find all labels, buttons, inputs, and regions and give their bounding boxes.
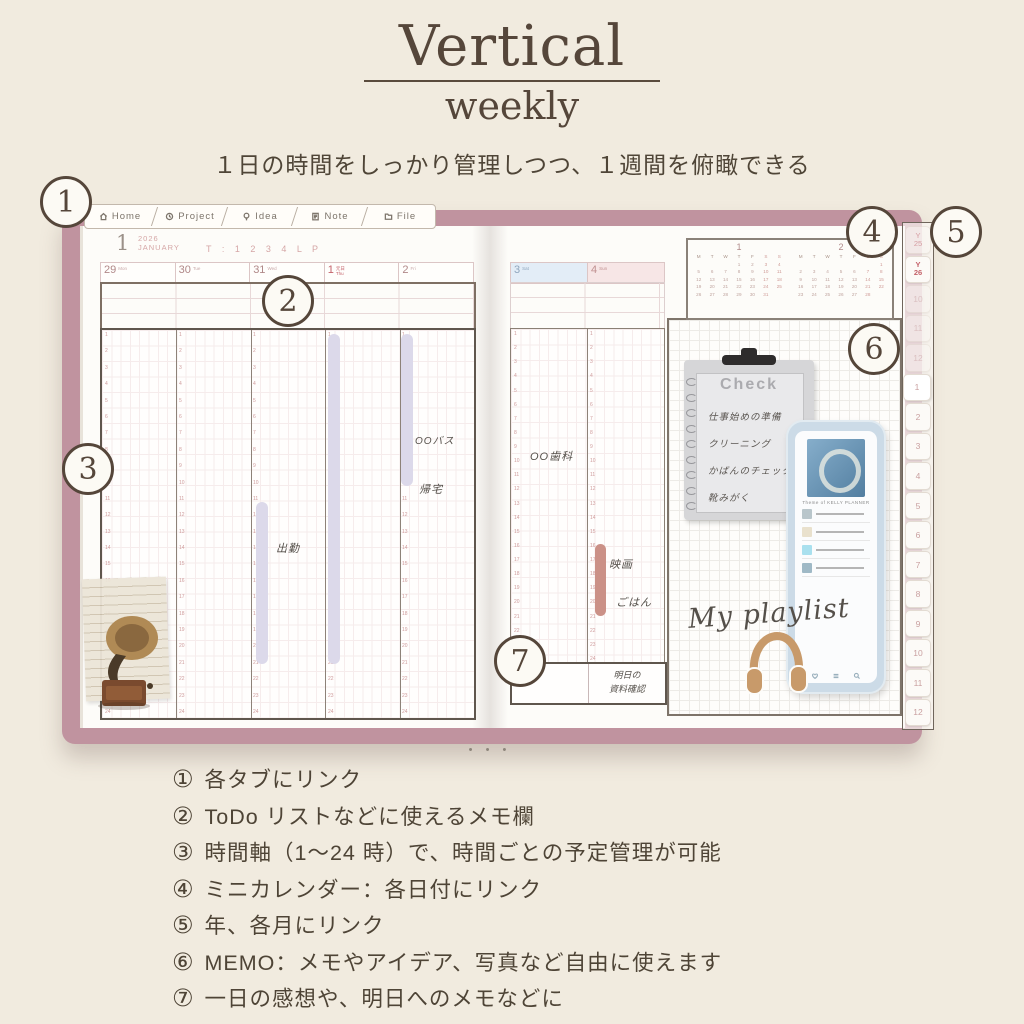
weekday-header: W <box>821 253 834 261</box>
day-cell-3[interactable]: 3 Sat <box>511 263 588 283</box>
hour-label: 17 <box>514 558 524 563</box>
mini-calendar-date[interactable]: 11 <box>821 276 834 284</box>
mini-calendar-date[interactable]: 18 <box>821 283 834 291</box>
track-title-line <box>816 549 864 551</box>
side-tab-8[interactable]: 8 <box>905 580 931 608</box>
mini-calendar-date[interactable]: 7 <box>719 268 732 276</box>
mini-calendar-date[interactable]: 4 <box>773 261 786 269</box>
note-icon <box>311 212 320 221</box>
hour-label: 5 <box>179 399 189 404</box>
mini-calendar-date[interactable]: 21 <box>861 283 874 291</box>
feature-item-2: ②ToDo リストなどに使えるメモ欄 <box>172 800 912 837</box>
mini-calendar-date[interactable]: 13 <box>848 276 861 284</box>
hour-label: 15 <box>179 562 189 567</box>
tab-idea-label: Idea <box>255 211 278 222</box>
mini-calendar-date[interactable]: 24 <box>807 291 820 299</box>
mini-calendar-date[interactable]: 19 <box>692 283 705 291</box>
hour-label: 14 <box>179 546 189 551</box>
hour-label: 5 <box>105 399 115 404</box>
clock-icon <box>165 212 174 221</box>
track-title-line <box>816 531 864 533</box>
headphones-icon <box>740 622 812 698</box>
hour-label: 9 <box>253 464 263 469</box>
hour-label: 24 <box>179 710 189 715</box>
day-cell-1[interactable]: 1 元日 Thu <box>325 263 400 283</box>
day-cell-29[interactable]: 29 Mon <box>101 263 176 283</box>
tab-note[interactable]: Note <box>295 205 365 228</box>
hour-label: 13 <box>105 530 115 535</box>
hour-label: 19 <box>514 586 524 591</box>
event-bar-bus <box>401 334 413 486</box>
page-subtitle: weekly <box>0 84 1024 128</box>
side-tab-10[interactable]: 10 <box>905 285 931 313</box>
mini-calendar-date[interactable]: 5 <box>834 268 847 276</box>
callout-1: 1 <box>40 176 92 228</box>
mini-calendar-date[interactable]: 3 <box>759 261 772 269</box>
side-tab-5[interactable]: 5 <box>905 492 931 520</box>
mini-calendar-date[interactable]: 28 <box>861 291 874 299</box>
mini-calendar-month-label[interactable]: 1 <box>692 242 786 252</box>
hour-label: 5 <box>590 389 600 394</box>
day-cell-2[interactable]: 2 Fri <box>399 263 473 283</box>
clipboard-clip <box>722 355 776 365</box>
mini-calendar-date[interactable]: 25 <box>773 283 786 291</box>
mini-calendar-date[interactable]: 26 <box>834 291 847 299</box>
hour-label: 2 <box>105 349 115 354</box>
entry-home: 帰宅 <box>419 481 443 497</box>
side-tab-2[interactable]: 2 <box>905 403 931 431</box>
hour-label: 9 <box>514 445 524 450</box>
feature-item-1: ①各タブにリンク <box>172 763 912 800</box>
right-timeline-grid: 123456789101112131415161718192021222324 … <box>510 328 665 666</box>
hour-label: 16 <box>402 579 412 584</box>
day-number: 31 <box>253 264 265 276</box>
mini-calendar-date[interactable]: 9 <box>794 276 807 284</box>
mini-calendar-date[interactable]: 30 <box>746 291 759 299</box>
hour-label: 2 <box>514 346 524 351</box>
mini-calendar-empty <box>821 261 834 269</box>
hour-label: 7 <box>105 431 115 436</box>
column-divider <box>176 330 177 718</box>
mini-calendar-date[interactable]: 6 <box>848 268 861 276</box>
mini-calendar-empty <box>848 261 861 269</box>
hour-label: 13 <box>179 530 189 535</box>
hour-label: 3 <box>105 366 115 371</box>
hour-label: 13 <box>402 530 412 535</box>
week-links[interactable]: T : 1 2 3 4 L P <box>206 244 322 254</box>
side-tab-11[interactable]: 11 <box>905 315 931 343</box>
hour-label: 4 <box>105 382 115 387</box>
tab-note-label: Note <box>324 211 348 222</box>
hour-label: 21 <box>402 661 412 666</box>
hour-label: 5 <box>253 399 263 404</box>
hour-label: 22 <box>590 629 600 634</box>
hour-label: 3 <box>514 360 524 365</box>
hour-label: 23 <box>253 694 263 699</box>
mini-calendar-date[interactable]: 15 <box>875 276 888 284</box>
hour-label: 10 <box>514 459 524 464</box>
side-tab-y25[interactable]: Y25 <box>905 226 931 254</box>
hour-label: 22 <box>328 677 338 682</box>
track-row <box>802 527 870 541</box>
gramophone-icon <box>88 602 168 717</box>
hour-label: 19 <box>402 628 412 633</box>
hour-label: 16 <box>179 579 189 584</box>
event-bar-commute <box>256 502 268 664</box>
right-memo-row[interactable] <box>510 282 665 330</box>
hour-label: 1 <box>253 333 263 338</box>
feature-item-7: ⑦一日の感想や、明日へのメモなどに <box>172 982 912 1019</box>
entry-dinner: ごはん <box>616 594 652 610</box>
mini-calendar-date[interactable]: 7 <box>861 268 874 276</box>
hour-label: 22 <box>253 677 263 682</box>
day-number: 3 <box>514 264 520 276</box>
hour-label: 13 <box>514 502 524 507</box>
mini-calendar-date[interactable]: 1 <box>875 261 888 269</box>
mini-calendar-date[interactable]: 17 <box>759 276 772 284</box>
callout-5: 5 <box>930 206 982 258</box>
track-thumbnail <box>802 527 812 537</box>
mini-calendar-date[interactable]: 29 <box>732 291 745 299</box>
hour-label: 23 <box>328 694 338 699</box>
page: Vertical weekly １日の時間をしっかり管理しつつ、１週間を俯瞰でき… <box>0 0 1024 1024</box>
check-item: 靴みがく <box>708 485 792 512</box>
mini-calendar-date[interactable]: 23 <box>794 291 807 299</box>
mini-calendar-empty <box>794 261 807 269</box>
hour-label: 9 <box>590 445 600 450</box>
hour-label: 18 <box>179 612 189 617</box>
hour-label: 6 <box>590 403 600 408</box>
weekday-label: Fri <box>411 264 416 271</box>
hour-label: 14 <box>590 516 600 521</box>
hour-label: 20 <box>179 644 189 649</box>
tab-file-label: File <box>397 211 416 222</box>
mini-calendar-date[interactable]: 20 <box>705 283 718 291</box>
track-title-line <box>816 513 864 515</box>
mini-calendar-date[interactable]: 28 <box>719 291 732 299</box>
check-items: 仕事始めの準備 クリーニング かばんのチェック 靴みがく <box>708 404 792 512</box>
weekday-header: T <box>705 253 718 261</box>
nav-tab-bar: Home Project Idea Note File <box>84 204 436 229</box>
check-item: クリーニング <box>708 431 792 458</box>
hour-label: 16 <box>514 544 524 549</box>
mini-calendar-date[interactable]: 10 <box>759 268 772 276</box>
hour-label: 3 <box>590 360 600 365</box>
search-icon <box>853 672 861 680</box>
hour-label: 8 <box>590 431 600 436</box>
tab-home-label: Home <box>112 211 141 222</box>
mini-calendar-date[interactable]: 15 <box>732 276 745 284</box>
hour-label: 7 <box>179 431 189 436</box>
mini-calendar-date[interactable]: 27 <box>848 291 861 299</box>
hour-label: 4 <box>590 374 600 379</box>
side-tab-11[interactable]: 11 <box>905 669 931 697</box>
check-item: かばんのチェック <box>708 458 792 485</box>
mini-calendar-date[interactable]: 10 <box>807 276 820 284</box>
tab-project-label: Project <box>178 211 215 222</box>
time-axis: 123456789101112131415161718192021222324 <box>514 332 524 662</box>
track-row <box>802 545 870 559</box>
hour-label: 11 <box>402 497 412 502</box>
mini-calendar-date[interactable]: 3 <box>807 268 820 276</box>
entry-bus: OOバス <box>415 432 455 447</box>
day-number: 29 <box>104 264 116 276</box>
weekday-header: T <box>834 253 847 261</box>
note-box-divider <box>588 664 589 703</box>
hour-label: 4 <box>514 374 524 379</box>
hour-label: 10 <box>590 459 600 464</box>
weekday-label: Mon <box>118 264 127 271</box>
mini-calendar-date[interactable]: 2 <box>746 261 759 269</box>
holiday-weekday-label: 元日 Thu <box>336 264 345 276</box>
hour-label: 13 <box>590 502 600 507</box>
lightbulb-icon <box>242 212 251 221</box>
mini-calendar-date[interactable]: 21 <box>719 283 732 291</box>
mini-calendar-empty <box>861 261 874 269</box>
mini-calendar-date[interactable]: 18 <box>773 276 786 284</box>
hour-label: 17 <box>179 595 189 600</box>
weekday-header: M <box>692 253 705 261</box>
mini-calendar-date[interactable]: 13 <box>705 276 718 284</box>
hour-label: 17 <box>402 595 412 600</box>
mini-calendar-date[interactable]: 17 <box>807 283 820 291</box>
hour-label: 5 <box>514 389 524 394</box>
year-month-label: 2026 JANUARY <box>138 235 180 252</box>
mini-calendar-empty <box>875 291 888 299</box>
hour-label: 9 <box>179 464 189 469</box>
mini-calendar-date[interactable]: 14 <box>861 276 874 284</box>
hour-label: 4 <box>179 382 189 387</box>
column-divider <box>587 329 588 665</box>
event-bar-movie <box>595 544 606 616</box>
hour-label: 14 <box>402 546 412 551</box>
mini-calendar-empty <box>773 291 786 299</box>
hour-label: 23 <box>590 643 600 648</box>
hour-label: 2 <box>179 349 189 354</box>
hour-label: 8 <box>253 448 263 453</box>
side-tab-y26[interactable]: Y26 <box>905 256 931 284</box>
hour-label: 19 <box>179 628 189 633</box>
hour-label: 3 <box>253 366 263 371</box>
hour-label: 12 <box>402 513 412 518</box>
check-item: 仕事始めの準備 <box>708 404 792 431</box>
hour-label: 23 <box>402 694 412 699</box>
mini-calendar-date[interactable]: 19 <box>834 283 847 291</box>
tab-project[interactable]: Project <box>155 205 225 228</box>
mini-calendar-month: 1MTWTFSS12345678910111213141516171819202… <box>688 240 790 318</box>
hour-label: 1 <box>105 333 115 338</box>
hour-label: 15 <box>105 562 115 567</box>
side-tab-10[interactable]: 10 <box>905 639 931 667</box>
weekday-label: Sun <box>599 264 607 271</box>
spiral-binding <box>686 378 697 510</box>
mini-calendar-date[interactable]: 4 <box>821 268 834 276</box>
mini-calendar-date[interactable]: 8 <box>875 268 888 276</box>
mini-calendar-empty <box>807 261 820 269</box>
column-divider <box>251 330 252 718</box>
track-list <box>795 509 877 577</box>
hour-label: 7 <box>590 417 600 422</box>
feature-item-6: ⑥MEMO：メモやアイデア、写真など自由に使えます <box>172 946 912 983</box>
mini-calendar-date[interactable]: 31 <box>759 291 772 299</box>
tomorrow-note: 明日の 資料確認 <box>590 668 664 696</box>
mini-calendar-empty <box>719 261 732 269</box>
hour-label: 6 <box>179 415 189 420</box>
month-number[interactable]: 1 <box>116 231 129 255</box>
weekday-label: Thu <box>336 271 344 276</box>
hour-label: 8 <box>179 448 189 453</box>
hour-label: 1 <box>514 332 524 337</box>
hour-label: 11 <box>590 473 600 478</box>
hour-label: 24 <box>253 710 263 715</box>
right-date-row: 3 Sat 4 Sun <box>510 262 665 284</box>
callout-2: 2 <box>262 275 314 327</box>
side-tab-7[interactable]: 7 <box>905 551 931 579</box>
callout-4: 4 <box>846 206 898 258</box>
day-number: 1 <box>328 264 334 276</box>
weekday-header: M <box>794 253 807 261</box>
check-title: Check <box>684 376 814 394</box>
mini-calendar-date[interactable]: 22 <box>875 283 888 291</box>
mini-calendar-date[interactable]: 22 <box>732 283 745 291</box>
side-tab-4[interactable]: 4 <box>905 462 931 490</box>
tab-home[interactable]: Home <box>85 205 155 228</box>
track-title-line <box>816 567 864 569</box>
heart-icon <box>811 672 819 680</box>
side-tab-12[interactable]: 12 <box>905 699 931 727</box>
hour-label: 6 <box>514 403 524 408</box>
hour-label: 12 <box>590 487 600 492</box>
mini-calendar-date[interactable]: 20 <box>848 283 861 291</box>
entry-dentist: OO歯科 <box>530 448 573 464</box>
hour-label: 12 <box>105 513 115 518</box>
side-tab-3[interactable]: 3 <box>905 433 931 461</box>
mini-calendar-empty <box>705 261 718 269</box>
mini-calendar-date[interactable]: 1 <box>732 261 745 269</box>
day-cell-30[interactable]: 30 Tue <box>176 263 251 283</box>
album-art <box>807 439 865 497</box>
day-number: 30 <box>179 264 191 276</box>
hour-label: 12 <box>179 513 189 518</box>
weekday-header: S <box>759 253 772 261</box>
hour-label: 11 <box>514 473 524 478</box>
hour-label: 24 <box>402 710 412 715</box>
mini-calendar-date[interactable]: 16 <box>746 276 759 284</box>
hour-label: 20 <box>514 600 524 605</box>
hour-label: 10 <box>179 481 189 486</box>
column-divider <box>325 330 326 718</box>
mini-calendar-date[interactable]: 26 <box>692 291 705 299</box>
weekday-header: F <box>746 253 759 261</box>
mini-calendar-date[interactable]: 12 <box>692 276 705 284</box>
hour-label: 7 <box>253 431 263 436</box>
callout-7: 7 <box>494 635 546 687</box>
gramophone-collage <box>84 578 172 714</box>
callout-3: 3 <box>62 443 114 495</box>
hour-label: 22 <box>514 629 524 634</box>
entry-commute: 出勤 <box>276 540 300 556</box>
playlist-title: Theme of KELLY PLANNER <box>795 500 877 505</box>
side-tab-12[interactable]: 12 <box>905 344 931 372</box>
hour-label: 23 <box>179 694 189 699</box>
mini-calendar-date[interactable]: 6 <box>705 268 718 276</box>
hour-label: 4 <box>253 382 263 387</box>
hour-label: 8 <box>514 431 524 436</box>
hour-label: 22 <box>179 677 189 682</box>
side-tab-6[interactable]: 6 <box>905 521 931 549</box>
hour-label: 24 <box>328 710 338 715</box>
hour-label: 15 <box>514 530 524 535</box>
feature-list: ①各タブにリンク ②ToDo リストなどに使えるメモ欄 ③時間軸（1～24 時）… <box>172 763 912 1019</box>
hour-label: 14 <box>105 546 115 551</box>
track-thumbnail <box>802 563 812 573</box>
mini-calendar-date[interactable]: 2 <box>794 268 807 276</box>
track-thumbnail <box>802 509 812 519</box>
folder-icon <box>384 212 393 221</box>
hour-label: 6 <box>105 415 115 420</box>
track-thumbnail <box>802 545 812 555</box>
hour-label: 3 <box>179 366 189 371</box>
side-tab-index: Y25Y26101112123456789101112 <box>902 222 934 730</box>
hour-label: 7 <box>514 417 524 422</box>
mini-calendar-empty <box>834 261 847 269</box>
hour-label: 2 <box>590 346 600 351</box>
tab-file[interactable]: File <box>365 205 435 228</box>
page-title: Vertical <box>0 14 1024 79</box>
hour-label: 15 <box>590 530 600 535</box>
feature-item-3: ③時間軸（1～24 時）で、時間ごとの予定管理が可能 <box>172 836 912 873</box>
hour-label: 22 <box>402 677 412 682</box>
page-dots: • • • <box>455 744 525 756</box>
mini-calendar-grid: MTWTFSS123456789101112131415161718192021… <box>692 253 786 299</box>
hour-label: 10 <box>253 481 263 486</box>
weekday-header: S <box>773 253 786 261</box>
mini-calendar-date[interactable]: 8 <box>732 268 745 276</box>
mini-calendar-date[interactable]: 9 <box>746 268 759 276</box>
tab-idea[interactable]: Idea <box>225 205 295 228</box>
mini-calendar-date[interactable]: 16 <box>794 283 807 291</box>
hour-label: 21 <box>179 661 189 666</box>
side-tab-1[interactable]: 1 <box>903 374 931 402</box>
mini-calendar-date[interactable]: 27 <box>705 291 718 299</box>
hour-label: 18 <box>514 572 524 577</box>
mini-calendar-date[interactable]: 12 <box>834 276 847 284</box>
weekday-label: Tue <box>193 264 201 271</box>
hour-label: 11 <box>179 497 189 502</box>
weekday-header: T <box>807 253 820 261</box>
day-number: 2 <box>402 264 408 276</box>
weekday-label: Sat <box>522 264 529 271</box>
mini-calendar-date[interactable]: 25 <box>821 291 834 299</box>
day-number: 4 <box>591 264 597 276</box>
hour-label: 21 <box>514 615 524 620</box>
event-bar-holiday <box>328 334 340 664</box>
hour-label: 15 <box>402 562 412 567</box>
callout-6: 6 <box>848 323 900 375</box>
entry-movie: 映画 <box>609 556 633 572</box>
mini-calendar-date[interactable]: 14 <box>719 276 732 284</box>
mini-calendar-date[interactable]: 11 <box>773 268 786 276</box>
mini-calendar-date[interactable]: 24 <box>759 283 772 291</box>
hour-label: 14 <box>514 516 524 521</box>
hour-label: 2 <box>253 349 263 354</box>
mini-calendar-date[interactable]: 23 <box>746 283 759 291</box>
hour-label: 6 <box>253 415 263 420</box>
title-underline <box>364 80 660 82</box>
mini-calendar-date[interactable]: 5 <box>692 268 705 276</box>
side-tab-9[interactable]: 9 <box>905 610 931 638</box>
day-cell-4[interactable]: 4 Sun <box>588 263 664 283</box>
